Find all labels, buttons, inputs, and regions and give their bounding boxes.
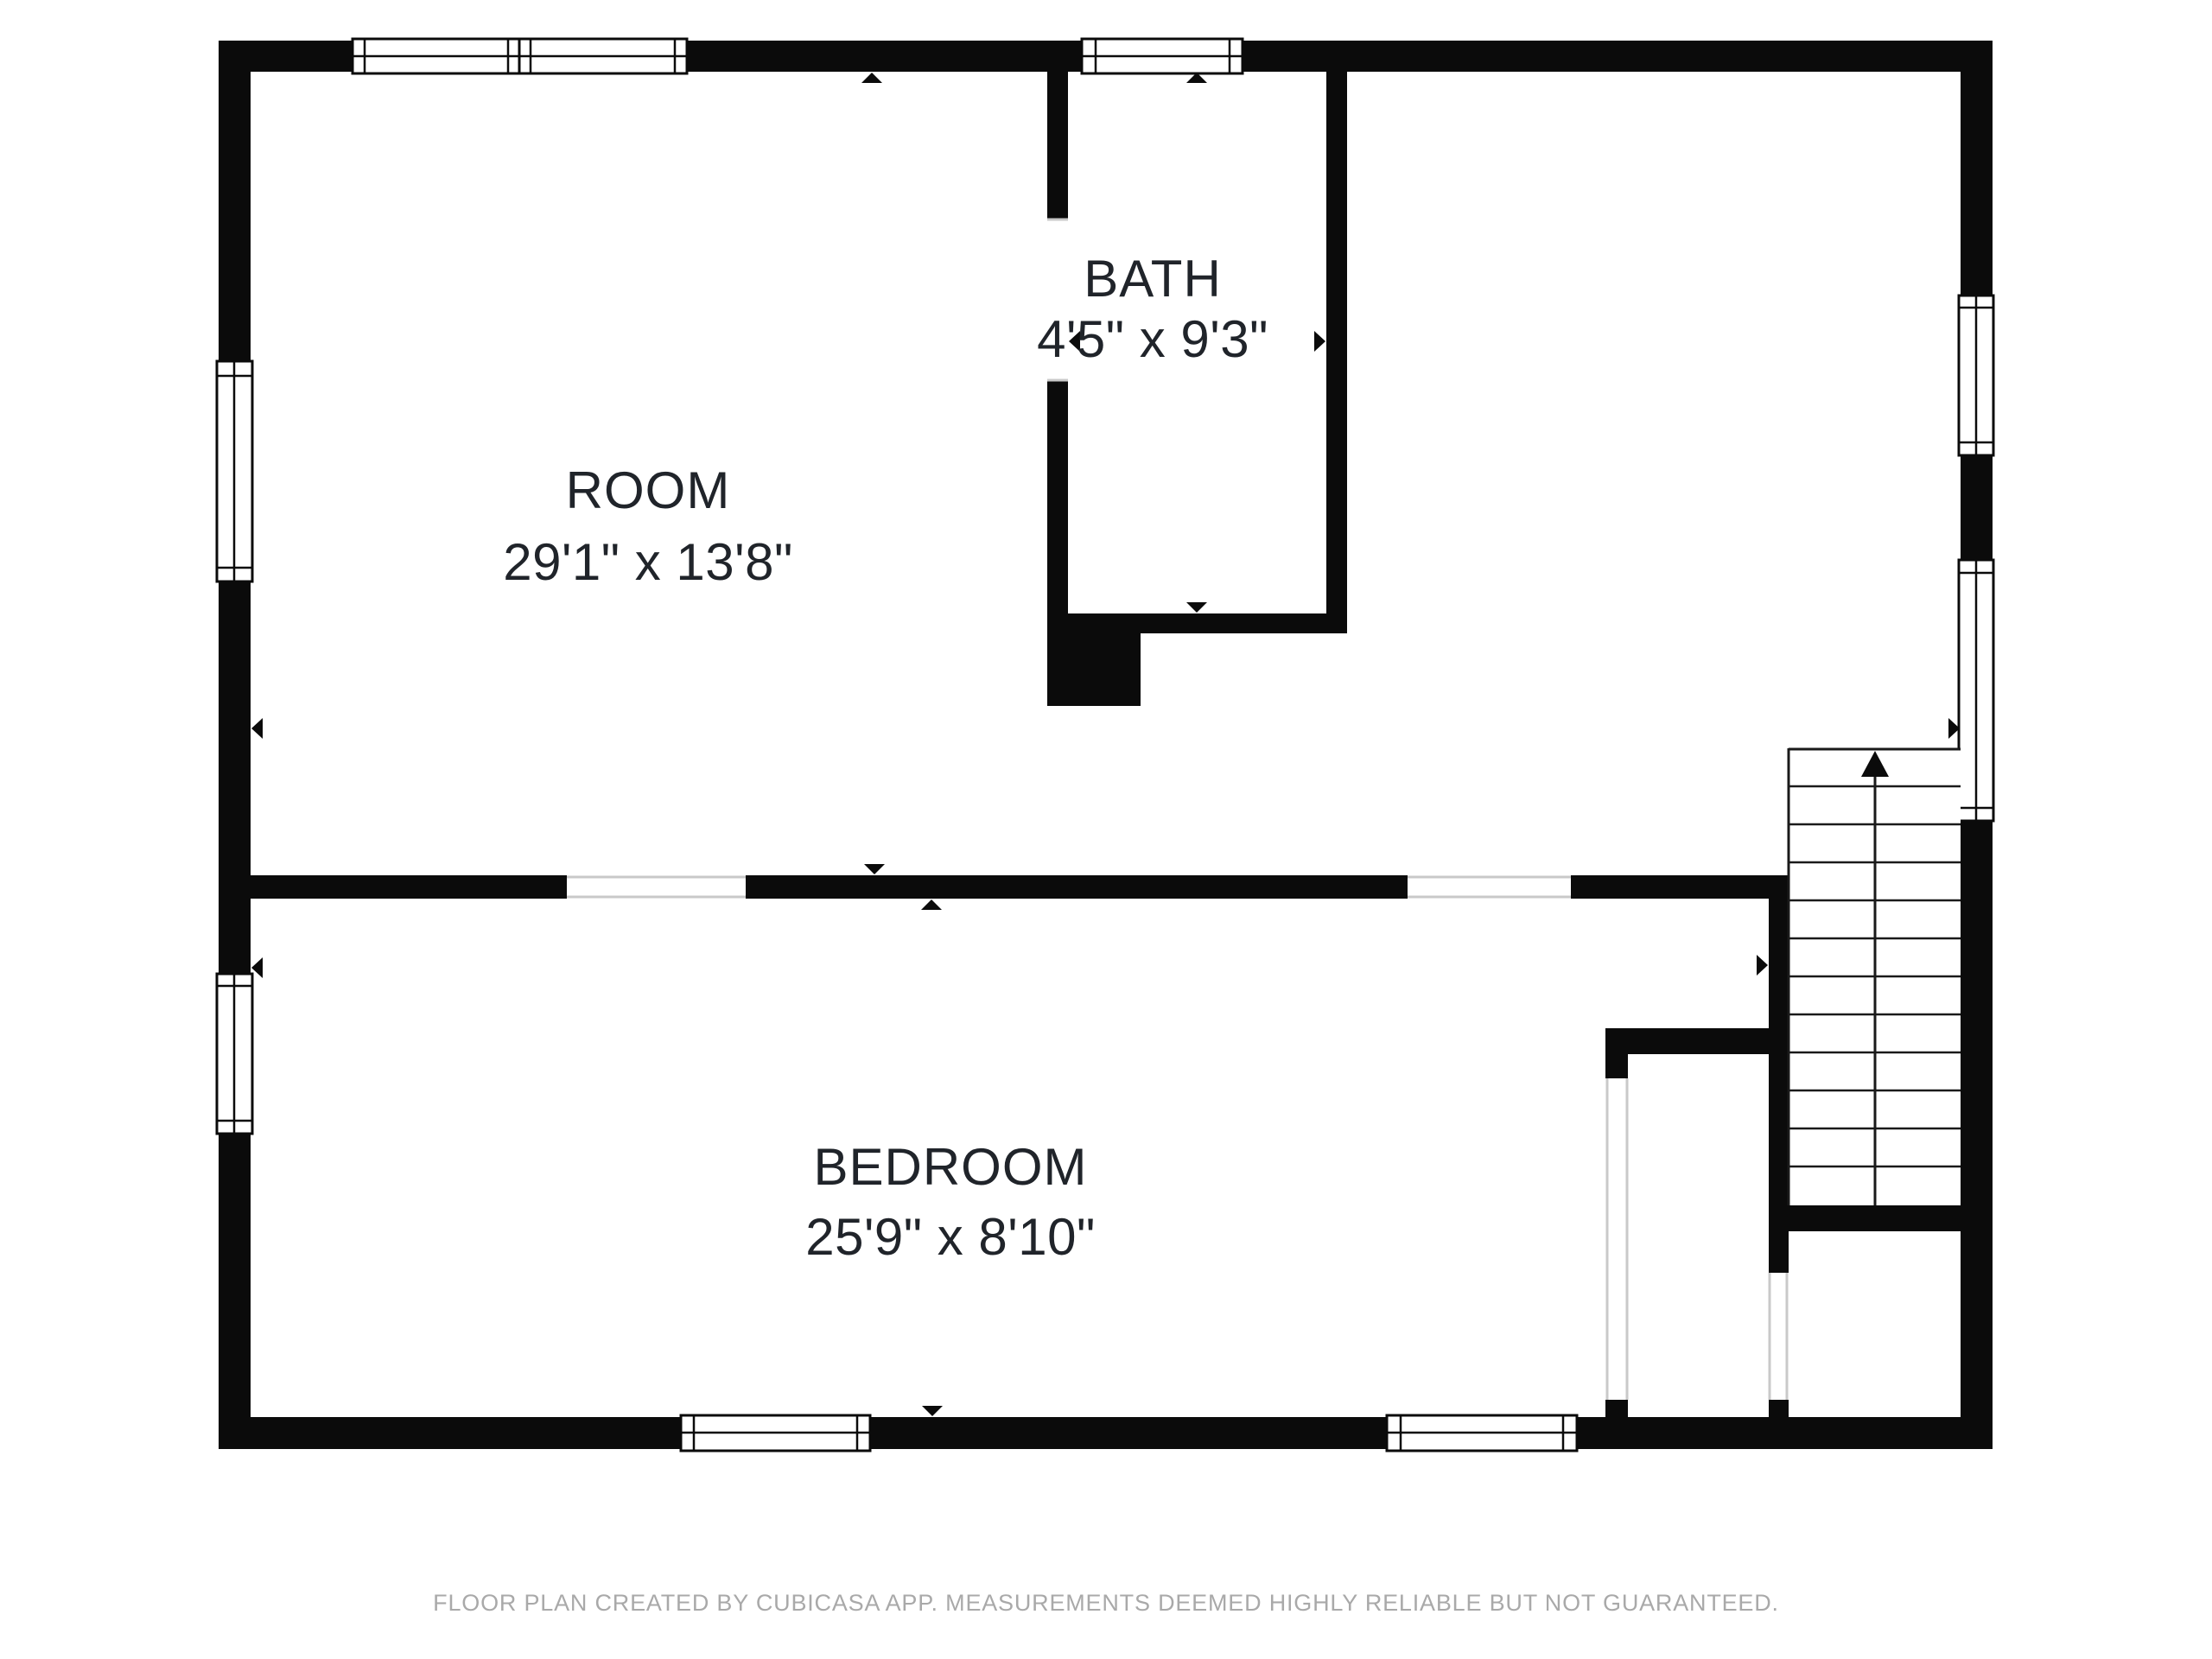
window — [519, 39, 687, 73]
bath-arrow-down-icon — [1186, 602, 1207, 613]
closet-wall-left-stub-top — [1605, 1054, 1628, 1078]
room-dimensions: 29'1" x 13'8" — [503, 533, 793, 591]
room-arrow-left-icon — [251, 718, 263, 739]
bath-dimensions: 4'5" x 9'3" — [1037, 310, 1268, 368]
room-arrow-down-icon — [864, 864, 885, 874]
bedroom-arrow-up-icon — [921, 899, 942, 910]
bath-arrow-right-icon — [1314, 331, 1325, 352]
window — [217, 361, 252, 582]
bath-label: BATH — [1084, 250, 1222, 308]
bath-window — [1082, 39, 1243, 73]
closet-wall-top — [1605, 1028, 1769, 1054]
staircase — [1789, 748, 1961, 1205]
room-arrow-up-icon — [861, 73, 882, 83]
stair-wall-bottom — [1769, 1205, 1961, 1231]
room-labels-layer: ROOM 29'1" x 13'8" BATH 4'5" x 9'3" BEDR… — [503, 250, 1268, 1266]
bath-corner-block — [1047, 633, 1141, 706]
wall-left — [219, 41, 251, 1449]
bedroom-dimensions: 25'9" x 8'10" — [805, 1208, 1096, 1266]
bedroom-arrow-down-icon — [922, 1406, 943, 1416]
window — [353, 39, 519, 73]
middle-wall-segment-a — [251, 875, 567, 899]
bath-wall-bottom — [1047, 613, 1347, 633]
door-opening-lines — [567, 219, 1787, 1400]
bedroom-label: BEDROOM — [813, 1138, 1087, 1196]
closet-wall-left-stub-bottom — [1605, 1400, 1628, 1419]
window — [217, 974, 252, 1134]
bedroom-arrow-right-icon — [1757, 955, 1768, 976]
window — [1387, 1415, 1577, 1451]
window — [1959, 560, 1993, 821]
floor-plan-drawing: ROOM 29'1" x 13'8" BATH 4'5" x 9'3" BEDR… — [0, 0, 2212, 1659]
stair-wall-left-stub — [1769, 1400, 1789, 1419]
middle-wall-segment-b — [746, 875, 1408, 899]
middle-wall-segment-c — [1571, 875, 1789, 899]
wall-bottom — [219, 1417, 1992, 1449]
window — [1959, 296, 1993, 455]
footer-disclaimer: FLOOR PLAN CREATED BY CUBICASA APP. MEAS… — [433, 1590, 1779, 1616]
bath-wall-right — [1326, 72, 1347, 633]
room-label: ROOM — [566, 461, 731, 519]
window — [681, 1415, 870, 1451]
floor-plan-page: ROOM 29'1" x 13'8" BATH 4'5" x 9'3" BEDR… — [0, 0, 2212, 1659]
